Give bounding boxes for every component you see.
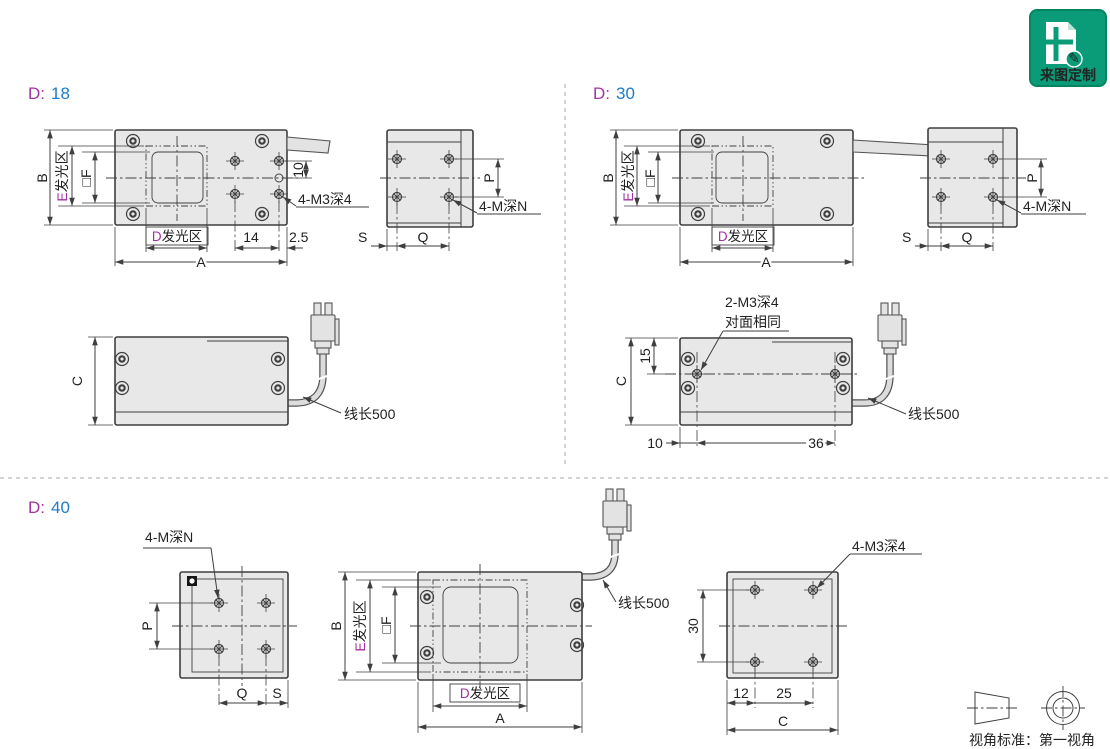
d40-end-view: 4-M3深4 30 12 25 C (685, 538, 922, 735)
dim-label-a: A (495, 710, 505, 726)
wire-length-label: 线长500 (908, 406, 960, 422)
dim-label-2-5: 2.5 (289, 229, 309, 245)
dim-label-f: □F (642, 169, 658, 186)
wire-length-label: 线长500 (618, 595, 670, 611)
dim-label-e-area: E发光区 (54, 150, 70, 201)
hole-note-label: 2-M3深4 (725, 294, 779, 310)
d30-plan-view: B E发光区 □F D发光区 A (600, 130, 934, 270)
hole-note-label: 4-M深N (1023, 198, 1071, 214)
dim-label-s: S (902, 229, 911, 245)
cable-stub (287, 137, 330, 153)
section-d40-title: D:40 (28, 498, 70, 517)
dim-label-25: 25 (776, 685, 792, 701)
circles-symbol-icon (1041, 686, 1085, 730)
dim-label-q: Q (418, 229, 429, 245)
cable-stub (853, 140, 934, 156)
d18-end-view: P 4-M深N Q S (358, 130, 541, 251)
dim-label-e-area: E发光区 (620, 150, 636, 201)
d40-back-view: 4-M深N P Q S (139, 529, 297, 708)
projection-standard-label: 视角标准：第一视角 (969, 732, 1095, 748)
hole-note-label2: 对面相同 (725, 314, 781, 330)
d30-side-view: 2-M3深4 对面相同 15 C 10 36 线长500 (613, 294, 960, 451)
dim-label-b: B (600, 173, 616, 182)
dim-label-10: 10 (290, 162, 306, 178)
dim-label-d-area: D发光区 (460, 686, 510, 701)
connector-icon (603, 489, 631, 540)
dim-label-10: 10 (647, 435, 663, 451)
dim-label-s: S (358, 229, 367, 245)
hole-note-label: 4-M深N (479, 198, 527, 214)
section-d18-title: D:18 (28, 84, 70, 103)
connector-icon (311, 303, 339, 354)
d40-plan-view: 线长500 B E发光区 □F D发光区 A (328, 489, 670, 733)
wire-length-label: 线长500 (344, 406, 396, 422)
corner-marker-dot (189, 578, 194, 583)
dim-label-c: C (778, 713, 788, 729)
d18-side-view: 线长500 C (69, 303, 396, 425)
technical-drawing-page: D:18 B E发光区 □F 10 (0, 0, 1110, 749)
dim-label-f: □F (378, 616, 394, 633)
dim-label-14: 14 (243, 229, 259, 245)
dim-label-a: A (761, 254, 771, 270)
d30-end-view: P 4-M深N Q S (902, 128, 1086, 251)
dim-label-30: 30 (685, 618, 701, 634)
dim-label-c: C (613, 376, 629, 386)
pencil-icon: ✎ (1068, 50, 1080, 66)
hole-note-label: 4-M3深4 (298, 191, 352, 207)
dim-label-a: A (196, 254, 206, 270)
dim-label-e-area: E发光区 (352, 600, 368, 651)
dim-label-36: 36 (808, 435, 824, 451)
dim-label-15: 15 (637, 348, 653, 364)
dim-label-p: P (1024, 173, 1040, 182)
dim-label-s: S (272, 685, 281, 701)
dim-label-p: P (481, 173, 497, 182)
dim-label-d-area: D发光区 (718, 229, 768, 244)
dim-label-q: Q (962, 229, 973, 245)
dim-label-f: □F (78, 169, 94, 186)
dim-label-b: B (328, 621, 344, 630)
d18-plan-view: B E发光区 □F 10 4-M3深4 D发光区 14 2.5 (34, 130, 369, 270)
projection-standard: 视角标准：第一视角 (967, 686, 1095, 748)
hole-note-label: 4-M3深4 (852, 538, 906, 554)
drawing-canvas: D:18 B E发光区 □F 10 (0, 0, 1110, 749)
badge-label[interactable]: 来图定制 (1039, 67, 1096, 83)
section-d30-title: D:30 (593, 84, 635, 103)
dim-label-p: P (139, 621, 155, 630)
section-d18: D:18 B E发光区 □F 10 (28, 84, 541, 425)
hole-note-label: 4-M深N (145, 529, 193, 545)
dim-label-c: C (69, 376, 85, 386)
dim-label-q: Q (237, 685, 248, 701)
section-d40: D:40 4-M深N P Q S (28, 489, 922, 735)
dim-label-12: 12 (733, 685, 749, 701)
section-d30: D:30 B E发光区 □F D发光区 A (593, 84, 1086, 451)
custom-drawing-badge[interactable]: ✎ 来图定制 (1030, 10, 1106, 86)
dim-label-d-area: D发光区 (152, 229, 202, 244)
connector-icon (878, 303, 906, 354)
dim-label-b: B (34, 173, 50, 182)
